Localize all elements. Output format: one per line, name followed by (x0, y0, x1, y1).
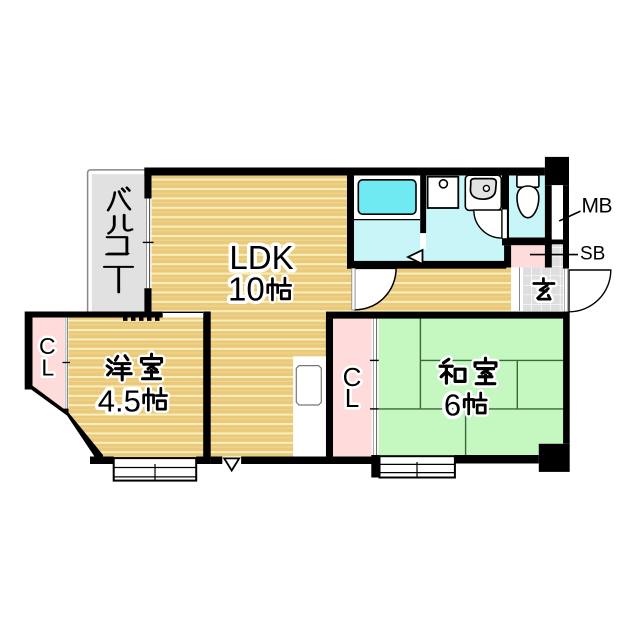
svg-text:L: L (41, 355, 54, 381)
svg-text:6: 6 (444, 387, 461, 422)
svg-text:L: L (345, 383, 359, 413)
svg-text:SB: SB (580, 244, 605, 265)
svg-text:MB: MB (582, 195, 613, 218)
svg-text:10: 10 (228, 271, 265, 308)
svg-text:4.5: 4.5 (98, 383, 141, 418)
